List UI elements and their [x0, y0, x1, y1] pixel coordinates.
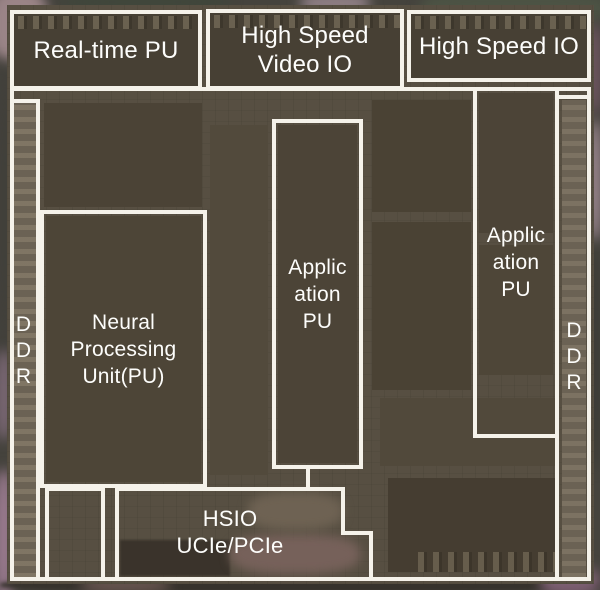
block-high-speed-io-outline — [407, 10, 591, 82]
die-photo: Real-time PU High Speed Video IO High Sp… — [0, 0, 600, 590]
hsio-right-line — [369, 531, 373, 581]
block-npu-outline — [40, 210, 207, 488]
block-realtime-pu-outline — [10, 10, 202, 90]
block-high-speed-video-io-outline — [206, 9, 404, 90]
block-apu-center-outline — [272, 119, 363, 469]
hsio-top-line — [115, 487, 345, 491]
hsio-left-line — [115, 487, 119, 581]
ddr-left-top-line — [10, 99, 40, 103]
apu-center-connector-line — [306, 466, 310, 491]
hsio-step-vertical-line — [341, 487, 345, 535]
block-apu-right-outline — [473, 87, 559, 438]
ddr-right-top-line — [555, 95, 591, 99]
block-small-unlabeled-outline — [45, 487, 105, 581]
